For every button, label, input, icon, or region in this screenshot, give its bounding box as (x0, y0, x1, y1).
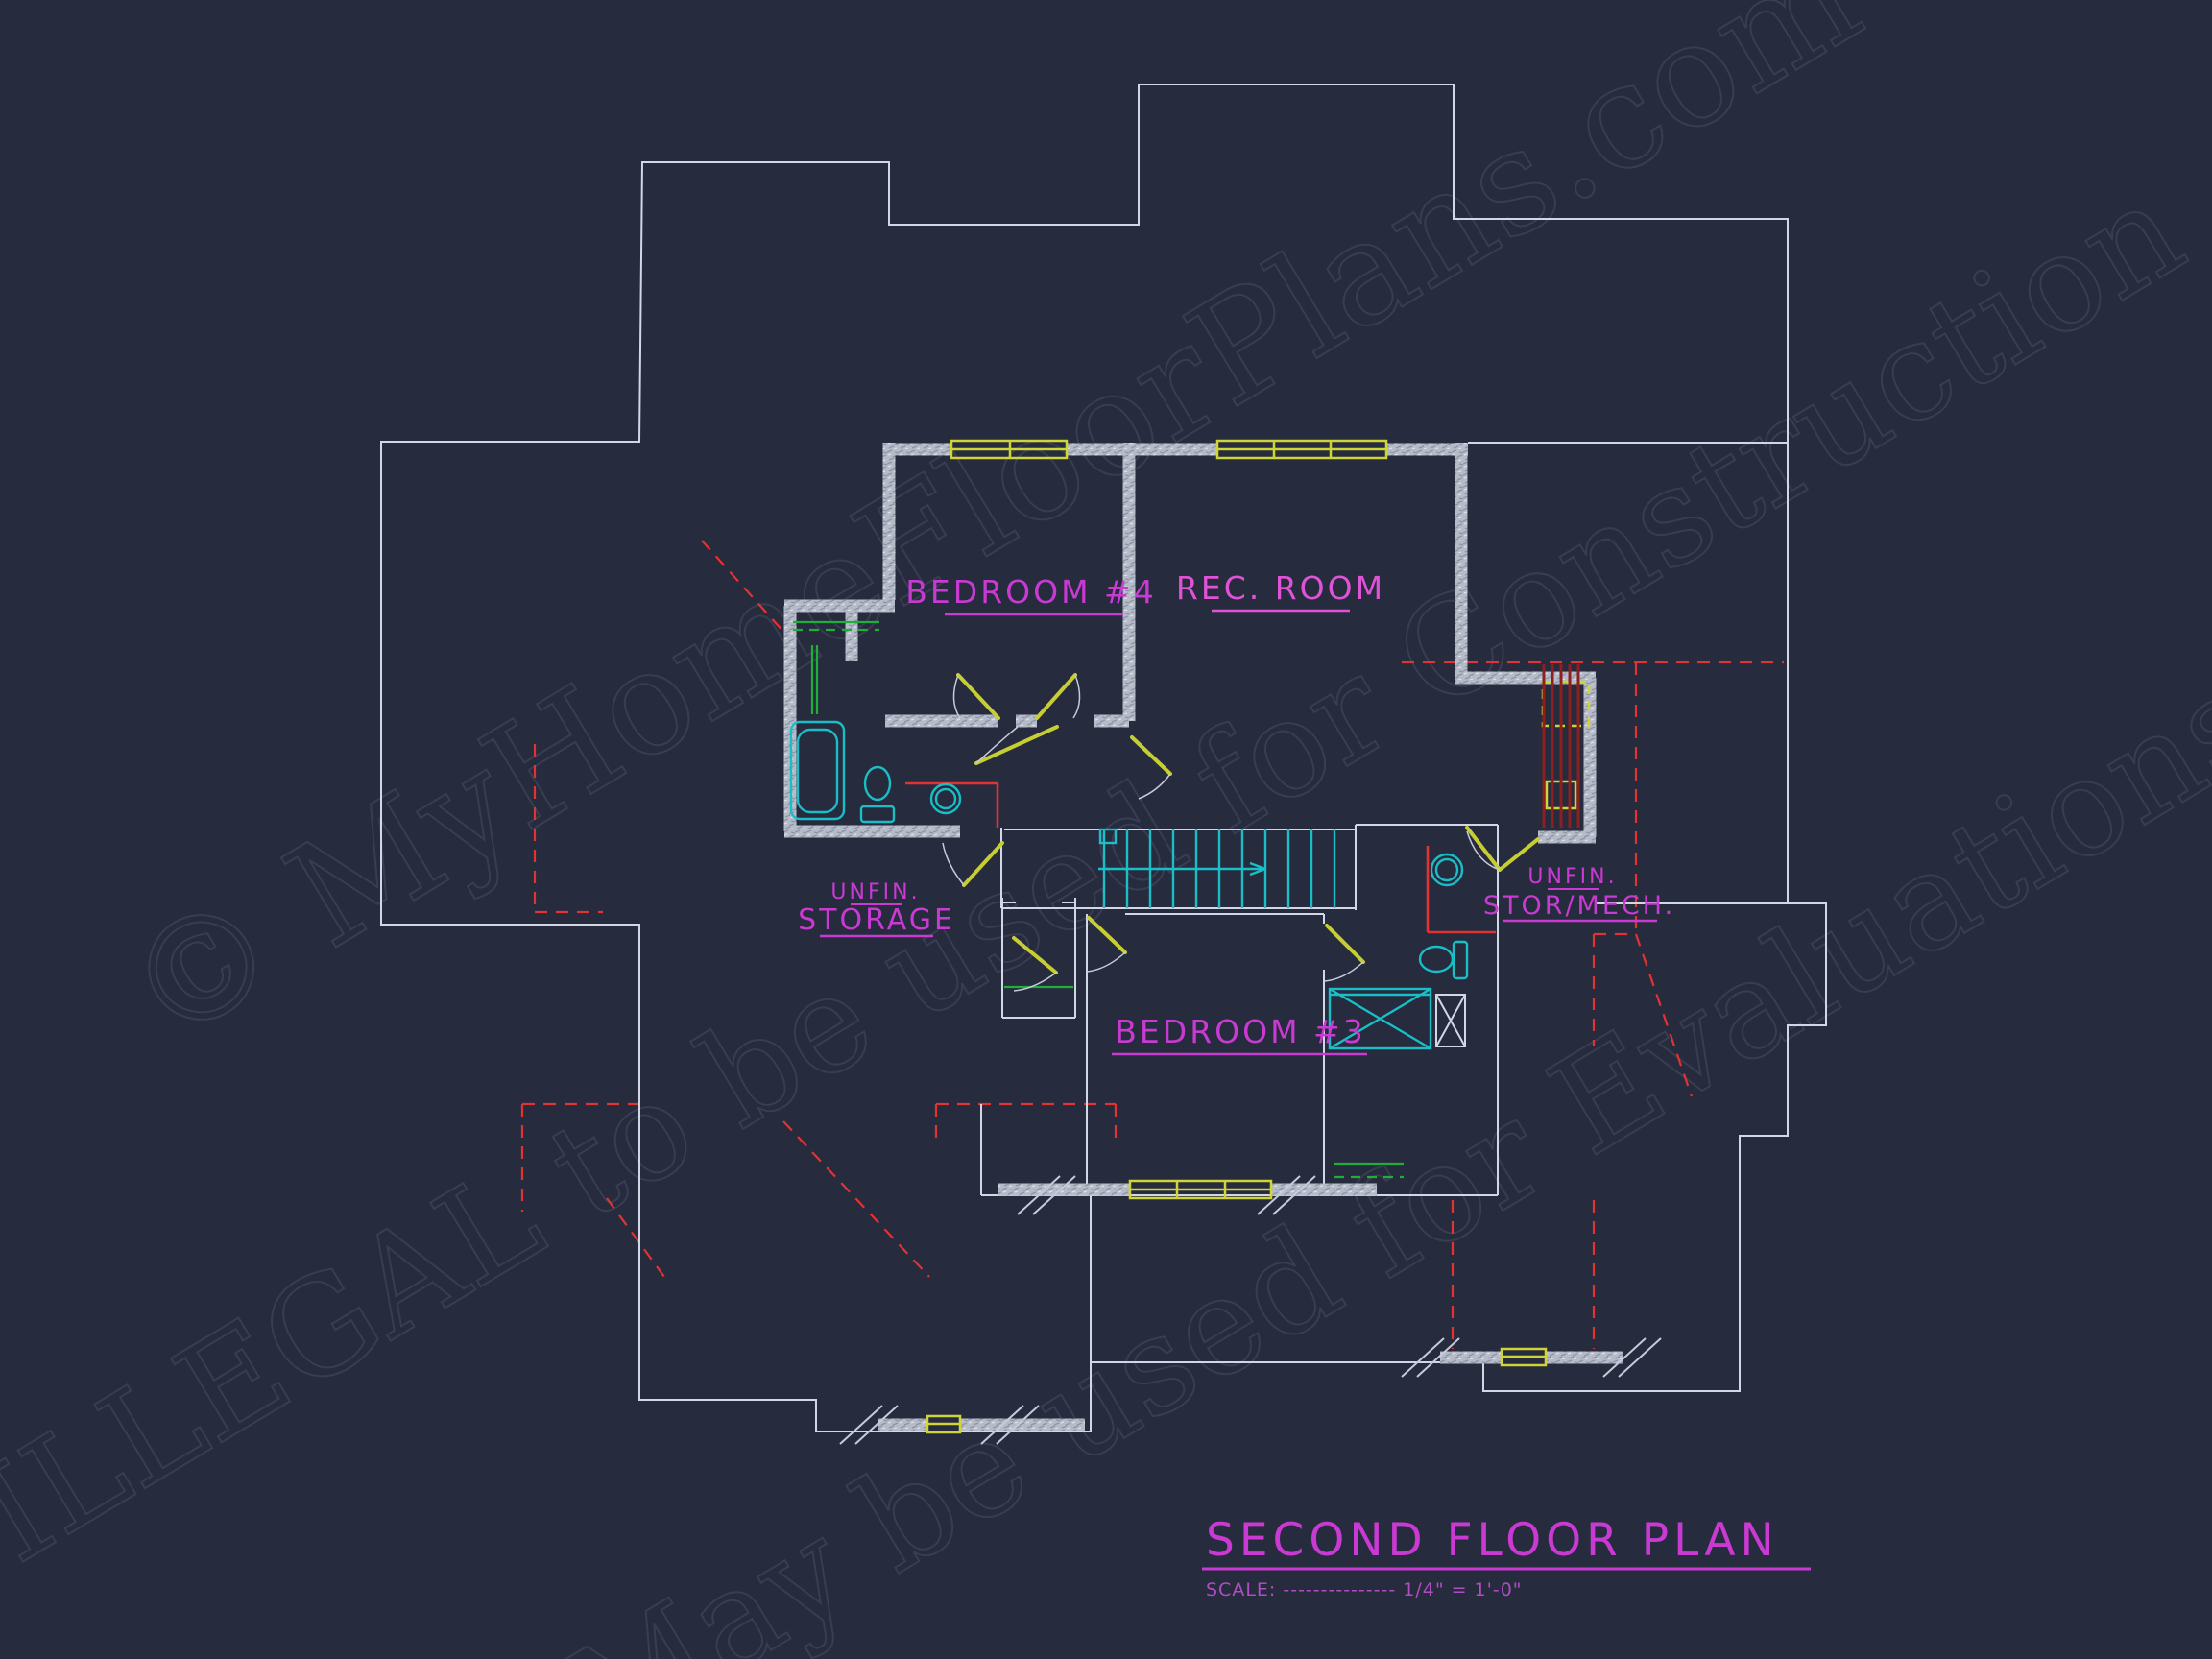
linen-closet-x (1436, 995, 1465, 1046)
plan-scale-note: SCALE: --------------- 1/4" = 1'-0" (1206, 1579, 1523, 1600)
label-storage-line1: UNFIN. (830, 880, 920, 904)
plan-title: SECOND FLOOR PLAN (1206, 1514, 1779, 1567)
chimney-chase (1543, 682, 1589, 808)
door-bedroom4-a (953, 675, 998, 718)
label-stor-mech-line2: STOR/MECH. (1483, 891, 1675, 921)
label-bedroom-3: BEDROOM #3 (1115, 1013, 1365, 1050)
floor-plan-page: © MyHomeFloorPlans.com ILLEGAL to be use… (0, 0, 2212, 1659)
toilet-bath3-icon (1420, 942, 1467, 978)
label-rec-room: REC. ROOM (1176, 569, 1385, 607)
door-stor-mech (1467, 828, 1538, 870)
sink-hall-bath-icon (931, 784, 960, 813)
floor-plan-canvas: © MyHomeFloorPlans.com ILLEGAL to be use… (0, 0, 2212, 1659)
door-bath3 (1325, 926, 1363, 981)
window-dormer-right (1502, 1349, 1546, 1365)
bathtub-icon (791, 722, 844, 819)
title-block: SECOND FLOOR PLAN SCALE: ---------------… (1202, 1514, 1811, 1600)
window-rec-room (1217, 441, 1386, 458)
door-bedroom4-b (1037, 675, 1080, 718)
door-hall-bath (976, 727, 1057, 763)
label-bedroom-4: BEDROOM #4 (905, 573, 1156, 611)
toilet-hall-bath-icon (861, 767, 894, 822)
label-stor-mech-line1: UNFIN. (1527, 865, 1617, 889)
chimney-flue-lines (1544, 664, 1578, 828)
sink-bath3-icon (1431, 854, 1462, 885)
label-storage-line2: STORAGE (798, 903, 955, 937)
